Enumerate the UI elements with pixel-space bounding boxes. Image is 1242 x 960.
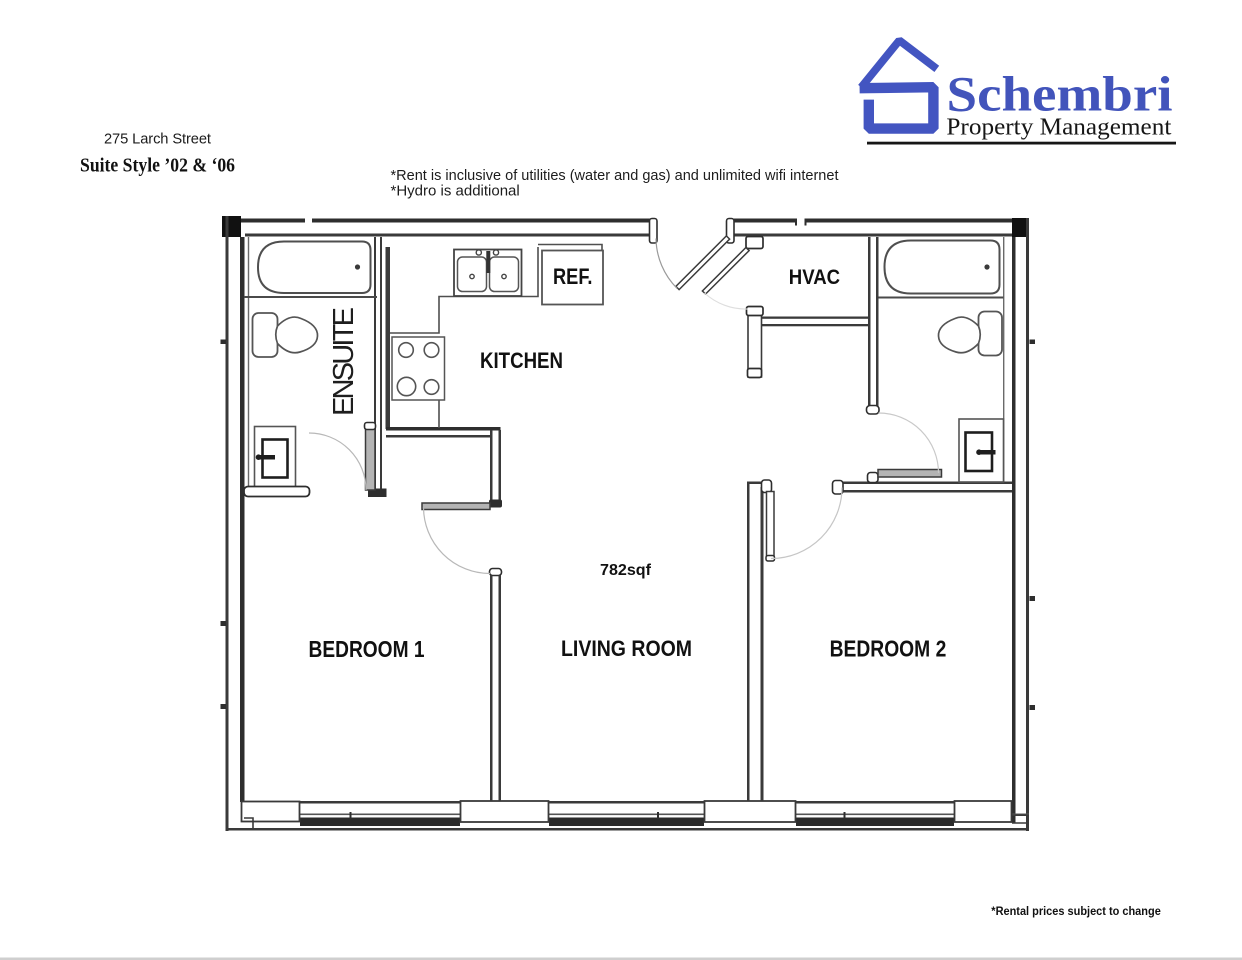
- svg-text:Property Management: Property Management: [946, 115, 1171, 141]
- svg-text:LIVING ROOM: LIVING ROOM: [561, 636, 692, 661]
- svg-text:HVAC: HVAC: [789, 266, 840, 289]
- svg-text:BEDROOM 2: BEDROOM 2: [830, 635, 947, 661]
- svg-text:Suite Style ’02 & ‘06: Suite Style ’02 & ‘06: [80, 155, 235, 177]
- svg-text:275 Larch Street: 275 Larch Street: [104, 131, 211, 147]
- svg-text:Schembri: Schembri: [947, 66, 1173, 122]
- svg-text:*Hydro is additional: *Hydro is additional: [391, 183, 520, 200]
- svg-text:*Rental prices subject to chan: *Rental prices subject to change: [991, 904, 1161, 918]
- svg-text:KITCHEN: KITCHEN: [480, 348, 563, 373]
- svg-text:782sqf: 782sqf: [600, 562, 652, 579]
- svg-text:REF.: REF.: [553, 264, 593, 289]
- svg-text:ENSUITE: ENSUITE: [328, 307, 360, 416]
- svg-text:*Rent is inclusive of utilitie: *Rent is inclusive of utilities (water a…: [391, 167, 840, 184]
- svg-text:BEDROOM 1: BEDROOM 1: [309, 636, 425, 662]
